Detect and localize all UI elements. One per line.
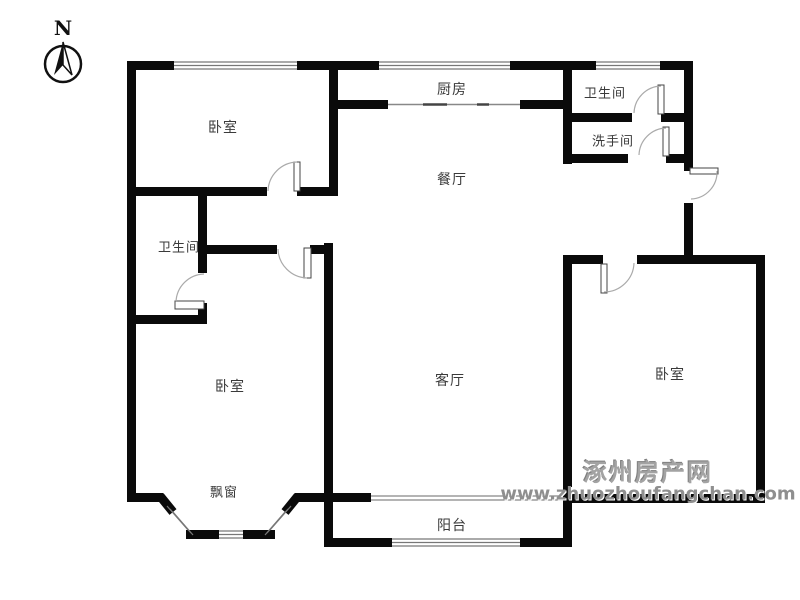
wall-outer-right-mid bbox=[684, 203, 693, 264]
door-washroom bbox=[639, 127, 669, 156]
window-kitchen bbox=[379, 62, 510, 69]
floor-plan-linework bbox=[0, 0, 800, 600]
room-label-bathroom-w: 卫生间 bbox=[158, 237, 200, 256]
wall-kitchen-bottom-a bbox=[331, 100, 388, 109]
compass-north-label: N bbox=[54, 16, 72, 40]
room-label-balcony: 阳台 bbox=[437, 515, 467, 535]
watermark-site-url: www.zhuozhoufangchan.com bbox=[500, 484, 795, 505]
room-label-bathroom-ne: 卫生间 bbox=[584, 83, 626, 102]
wall-bathroom-ne-bottom-a bbox=[567, 113, 632, 122]
wall-bedroom-nw-right bbox=[329, 61, 338, 196]
door-bathroom-w bbox=[175, 274, 204, 309]
room-label-bedroom-nw: 卧室 bbox=[208, 117, 238, 137]
wall-bedroom-e-right bbox=[756, 255, 765, 503]
watermark-site-name: 涿州房产网 bbox=[583, 453, 713, 488]
wall-outer-left bbox=[127, 61, 136, 500]
window-bathroom-ne bbox=[596, 62, 660, 69]
wall-living-balcony-a bbox=[333, 493, 371, 502]
door-bathroom-ne bbox=[634, 85, 664, 114]
wall-bathroom-w-bottom bbox=[127, 315, 207, 324]
wall-top-c bbox=[510, 61, 596, 70]
room-label-bedroom-sw: 卧室 bbox=[215, 376, 245, 396]
doors bbox=[175, 85, 718, 309]
wall-bathroom-ne-bottom-b bbox=[661, 113, 693, 122]
room-label-bedroom-e: 卧室 bbox=[655, 364, 685, 384]
wall-kitchen-bottom-b bbox=[520, 100, 564, 109]
wall-bay-bottom-b bbox=[243, 530, 275, 539]
door-entry bbox=[690, 168, 718, 199]
wall-bay-bottom-a bbox=[186, 530, 219, 539]
floor-plan: N 卧室 厨房 卫生间 洗手间 餐厅 卫生间 卧室 客厅 卧室 飘窗 阳台 涿州… bbox=[0, 0, 800, 600]
wall-balcony-bottom-a bbox=[329, 538, 392, 547]
window-balcony bbox=[392, 539, 520, 546]
wall-hallway-a bbox=[207, 245, 277, 254]
wall-hallway-b bbox=[310, 245, 333, 254]
wall-top-a bbox=[127, 61, 174, 70]
room-label-dining: 餐厅 bbox=[437, 169, 467, 189]
wall-kitchen-right bbox=[563, 61, 572, 164]
window-bedroom-nw bbox=[174, 62, 297, 69]
window-bay-bottom bbox=[219, 531, 243, 538]
door-bedroom-e bbox=[601, 263, 634, 293]
wall-bedroom-sw-bottom-left bbox=[127, 493, 163, 502]
door-bedroom-sw bbox=[278, 248, 311, 278]
wall-bathroom-w-right-upper bbox=[198, 188, 207, 273]
wall-bedroom-e-top-b bbox=[637, 255, 765, 264]
wall-washroom-bottom-a bbox=[567, 154, 628, 163]
room-label-living: 客厅 bbox=[435, 370, 465, 390]
north-compass bbox=[45, 42, 81, 82]
wall-bedroom-sw-bottom-right bbox=[295, 493, 333, 502]
wall-bedroom-nw-bottom-a bbox=[127, 187, 267, 196]
door-bedroom-nw bbox=[268, 162, 300, 191]
window-bay-diagonal-right bbox=[265, 506, 291, 535]
room-label-bay-window: 飘窗 bbox=[210, 482, 238, 501]
room-label-kitchen: 厨房 bbox=[437, 79, 467, 99]
wall-bedroom-nw-bottom-b bbox=[297, 187, 338, 196]
wall-balcony-bottom-b bbox=[520, 538, 572, 547]
window-bay-diagonal-left bbox=[167, 506, 193, 535]
room-label-washroom: 洗手间 bbox=[592, 131, 634, 150]
wall-washroom-bottom-b bbox=[666, 154, 693, 163]
